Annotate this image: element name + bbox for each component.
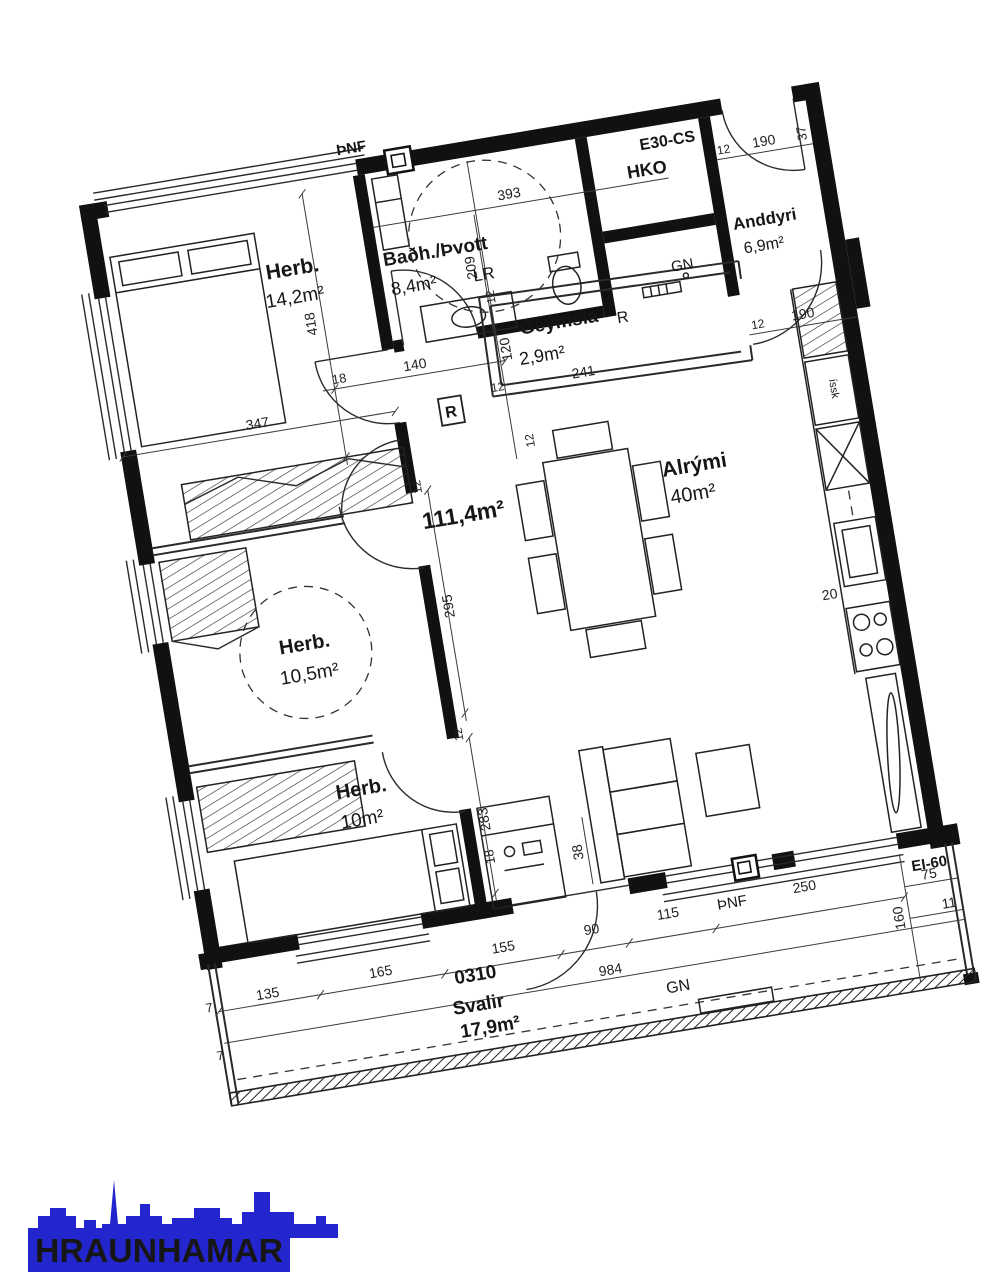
logo-text: HRAUNHAMAR xyxy=(35,1232,283,1269)
pnf-symbol-top xyxy=(384,146,414,174)
floorplan-drawing: Herb. 14,2m² Baðh./Þvott 8,4m² LR HKO E3… xyxy=(0,0,1008,1280)
dim-38: 38 xyxy=(568,843,586,861)
dim-18b: 18 xyxy=(481,849,498,866)
dim-12g: 12 xyxy=(450,726,466,742)
dim-20: 20 xyxy=(821,585,839,603)
dim-37: 37 xyxy=(793,125,810,142)
dim-12a: 12 xyxy=(716,142,732,158)
dim-12b: 12 xyxy=(750,316,766,332)
dim-11: 11 xyxy=(940,894,957,912)
dim-12f: 12 xyxy=(409,479,425,495)
dim-12d: 12 xyxy=(490,379,506,395)
pnf-symbol-bottom xyxy=(732,855,759,881)
dim-75: 75 xyxy=(920,864,938,882)
scanned-floorplan-page: Herb. 14,2m² Baðh./Þvott 8,4m² LR HKO E3… xyxy=(0,0,1008,1280)
dim-90: 90 xyxy=(582,920,600,938)
dim-12e: 12 xyxy=(522,432,538,448)
dim-18a: 18 xyxy=(331,370,348,387)
dim-12c: 12 xyxy=(483,289,499,305)
